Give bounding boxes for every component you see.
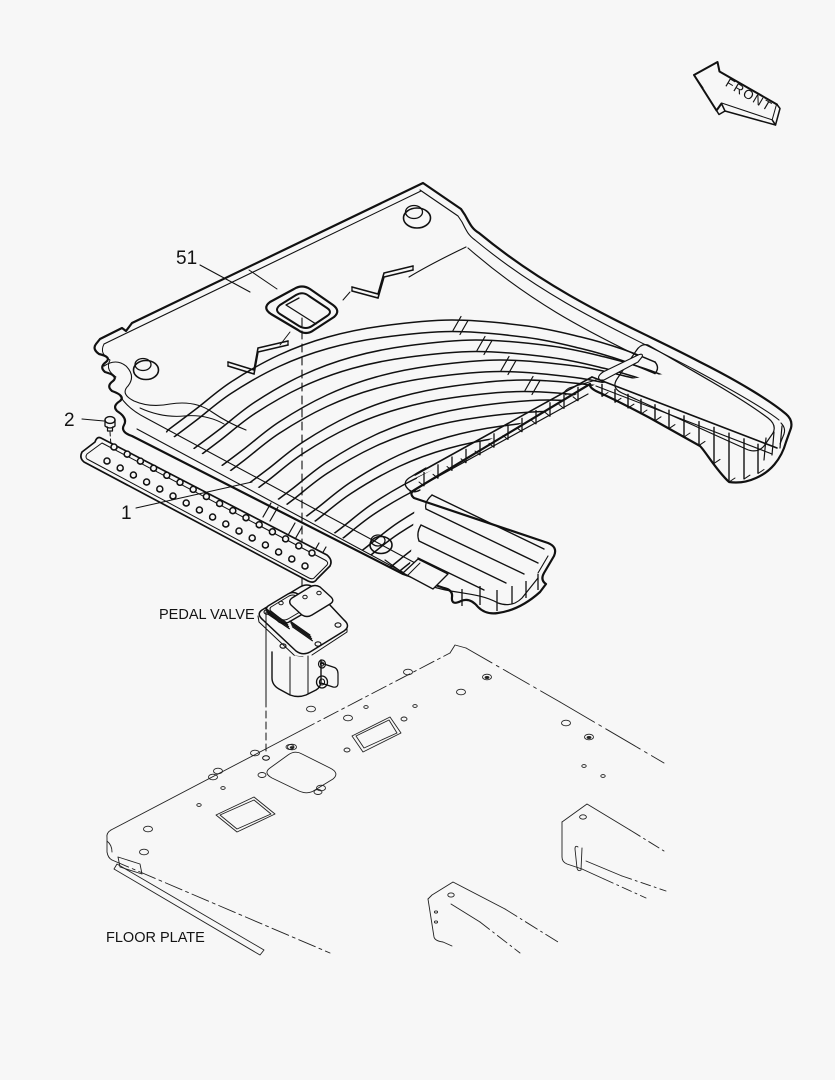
svg-text:51: 51: [176, 248, 197, 269]
svg-text:1: 1: [121, 503, 132, 524]
svg-text:PEDAL VALVE: PEDAL VALVE: [159, 607, 255, 623]
svg-text:2: 2: [64, 410, 75, 431]
svg-text:FLOOR PLATE: FLOOR PLATE: [106, 930, 205, 946]
